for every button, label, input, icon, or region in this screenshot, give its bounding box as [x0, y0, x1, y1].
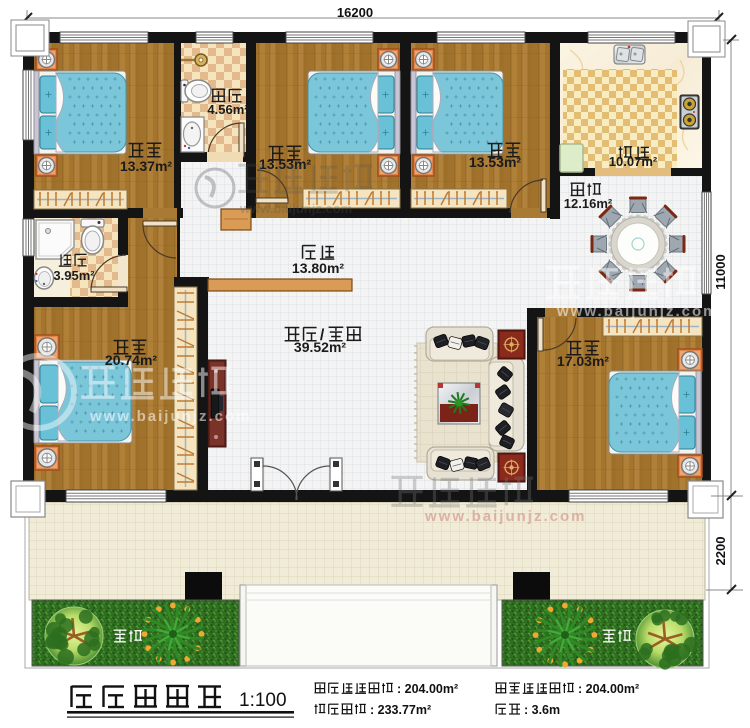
svg-text:12.16m²: 12.16m² — [564, 196, 613, 211]
svg-text:3.95m²: 3.95m² — [53, 268, 95, 283]
svg-text:2200: 2200 — [713, 537, 728, 566]
svg-text:13.80m²: 13.80m² — [292, 260, 344, 276]
svg-text:: 204.00m²: : 204.00m² — [578, 682, 639, 696]
svg-text:13.37m²: 13.37m² — [120, 158, 172, 174]
svg-text:4.56m²: 4.56m² — [207, 102, 249, 117]
svg-text:1:100: 1:100 — [239, 690, 287, 711]
svg-text:www.baijunjz.com: www.baijunjz.com — [89, 408, 251, 425]
svg-text:: 3.6m: : 3.6m — [524, 703, 560, 717]
svg-text:www.baijunjz.com: www.baijunjz.com — [239, 201, 352, 216]
svg-text:www.baijunjz.com: www.baijunjz.com — [424, 508, 586, 525]
svg-text:17.03m²: 17.03m² — [557, 353, 609, 369]
svg-text:39.52m²: 39.52m² — [294, 339, 346, 355]
svg-text:16200: 16200 — [337, 5, 373, 20]
svg-text:20.74m²: 20.74m² — [105, 352, 157, 368]
svg-text:11000: 11000 — [713, 254, 728, 289]
svg-text:www.baijunjz.com: www.baijunjz.com — [556, 303, 718, 320]
svg-text:: 204.00m²: : 204.00m² — [397, 682, 458, 696]
svg-text:13.53m²: 13.53m² — [469, 154, 521, 170]
svg-text:: 233.77m²: : 233.77m² — [370, 703, 431, 717]
svg-text:10.07m²: 10.07m² — [609, 154, 658, 169]
